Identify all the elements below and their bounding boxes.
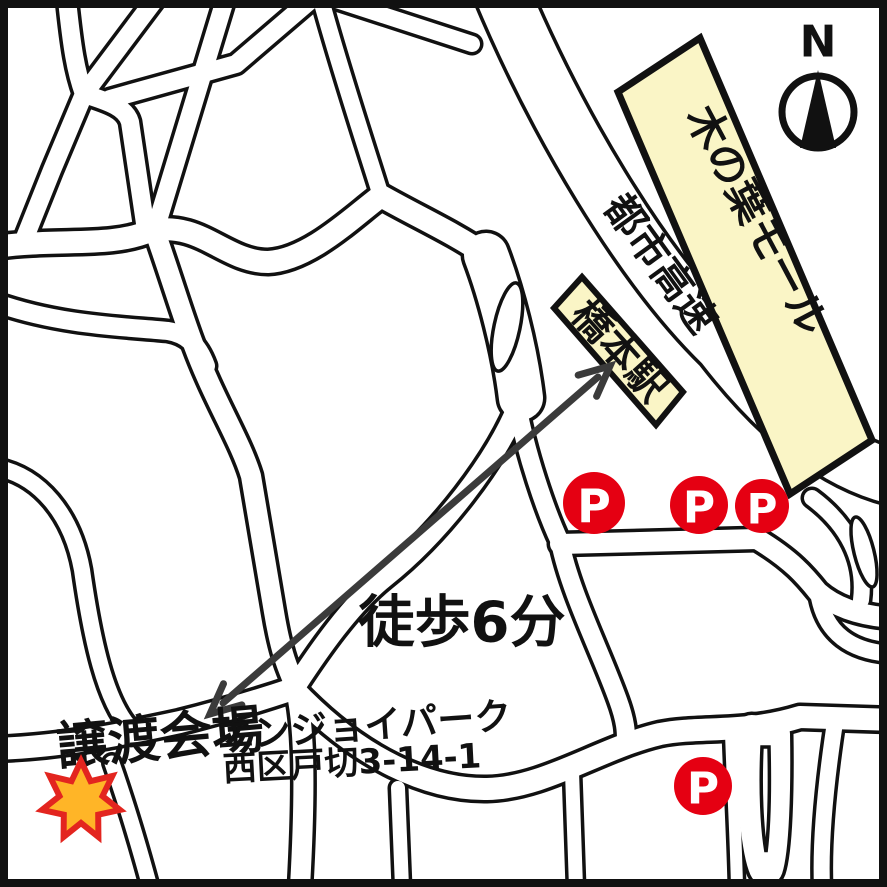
parking-badge-1: P [563,472,625,534]
parking-letter: P [577,479,611,533]
road-segment-r21 [572,772,576,887]
compass-north-label: N [800,17,837,68]
parking-letter: P [687,764,719,815]
road-segment-r22 [560,542,626,740]
north-compass: N [782,17,854,149]
access-map: 都市高速 木の葉モール 橋本駅 徒歩6分 譲渡会場 エンジョイパーク 西区戸切3… [0,0,887,887]
road-segment-r17 [112,763,150,887]
loop-traffic-island [761,747,769,852]
road-segment-r25 [731,733,737,887]
walk-time-label: 徒歩6分 [358,591,566,656]
road-segment-r20 [398,788,402,887]
road-segment-r4 [156,0,228,227]
parking-badge-4: P [674,757,732,815]
road-segment-r6 [22,94,84,245]
parking-letter: P [747,485,778,534]
map-canvas: 都市高速 木の葉モール 橋本駅 徒歩6分 譲渡会場 エンジョイパーク 西区戸切3… [0,0,887,887]
parking-badge-3: P [735,479,789,534]
parking-letter: P [683,483,715,534]
parking-badge-2: P [670,476,728,534]
road-segment-r15 [0,467,130,728]
road-segment-r8 [320,0,381,196]
